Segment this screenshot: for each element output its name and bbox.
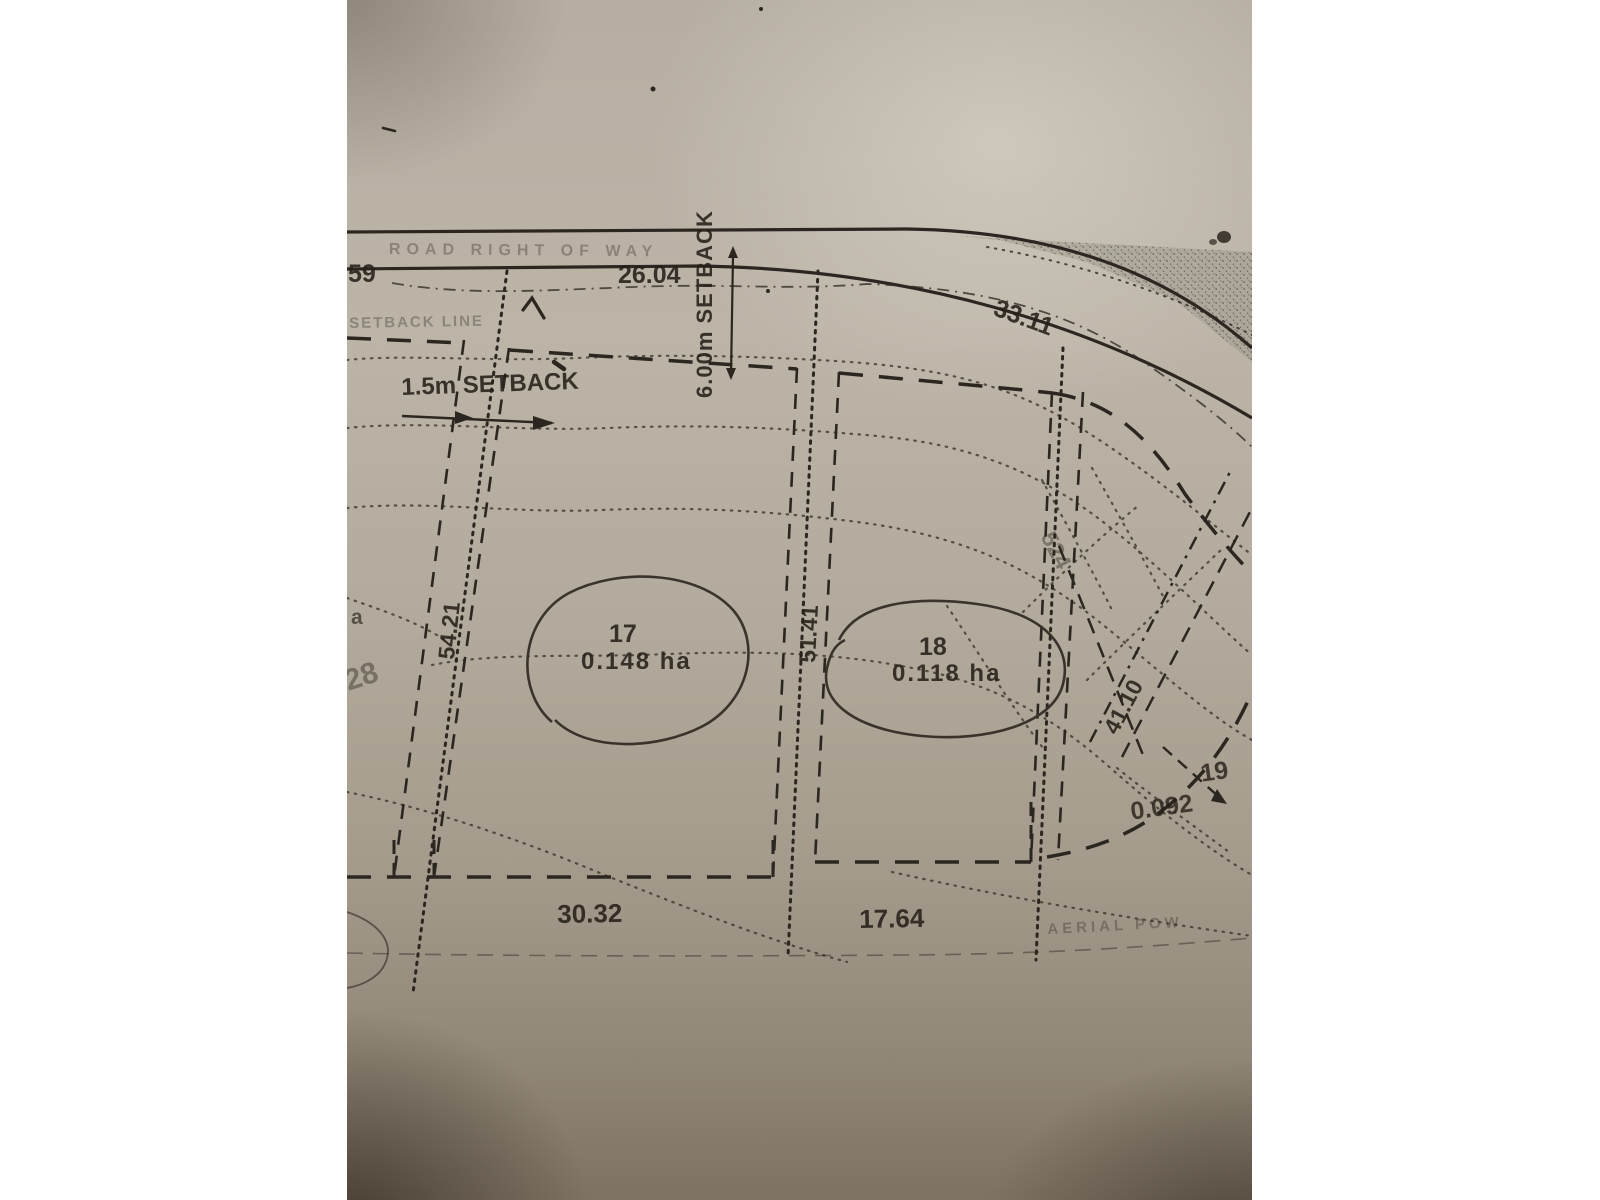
setback-line-label: SETBACK LINE [349,314,484,331]
lot19-side-lines [1059,472,1252,804]
screenshot: ROAD RIGHT OF WAY 59 26.04 33.11 SETBACK… [0,0,1600,1200]
lot18-number: 18 [919,635,947,660]
dim-edge-partial: 59 [348,262,376,287]
lot17-number: 17 [609,622,637,647]
setback-corner-ticks [394,802,1031,877]
dim-lot17-18-side: 51.41 [796,605,822,664]
lot19-number: 19 [1199,758,1230,787]
dim-lot17-rear: 30.32 [557,900,623,927]
road-name-label: ROAD RIGHT OF WAY [389,242,659,260]
dim-lot17-frontage: 26.04 [618,263,681,288]
lot18-area: 0.118 ha [892,662,1001,686]
survey-linework [347,0,1252,1200]
dim-lot18-rear: 17.64 [859,905,925,932]
rear-property-line [347,938,1252,956]
paper-plan-photo: ROAD RIGHT OF WAY 59 26.04 33.11 SETBACK… [347,0,1252,1200]
front-setback-label: 6.00m SETBACK [694,210,716,398]
partial-label-a: a [351,607,363,628]
side-setback-label: 1.5m SETBACK [401,370,579,400]
dim-lot17-left-side: 54.21 [435,601,464,661]
lot17-area: 0.148 ha [581,650,692,674]
side-setback-arrow [402,411,555,430]
lower-left-edge-curve [347,912,388,988]
